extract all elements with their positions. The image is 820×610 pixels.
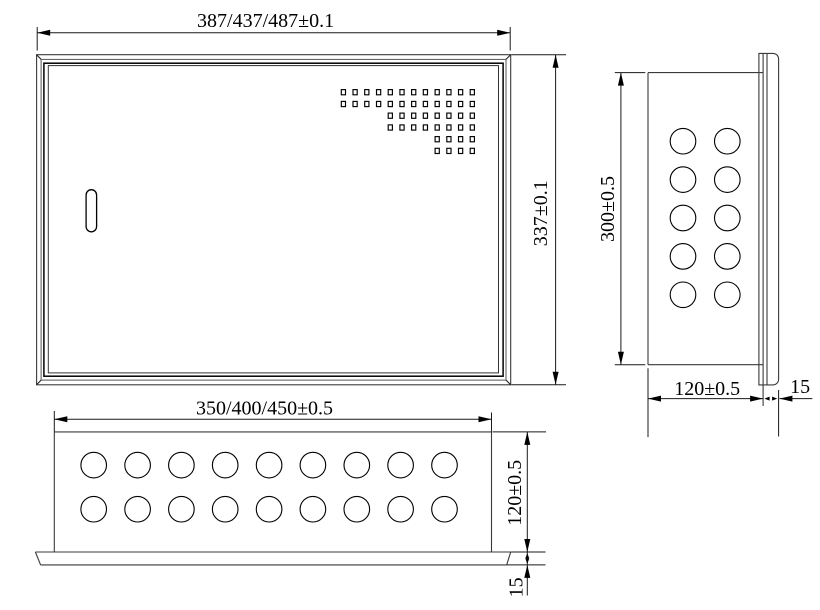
svg-text:387/437/487±0.1: 387/437/487±0.1	[197, 10, 334, 32]
svg-text:337±0.1: 337±0.1	[530, 180, 552, 246]
svg-text:300±0.5: 300±0.5	[597, 176, 619, 242]
svg-text:15: 15	[506, 577, 528, 597]
svg-text:120±0.5: 120±0.5	[504, 460, 526, 526]
svg-text:350/400/450±0.5: 350/400/450±0.5	[196, 397, 333, 419]
svg-text:15: 15	[790, 376, 810, 398]
svg-text:120±0.5: 120±0.5	[674, 378, 740, 400]
